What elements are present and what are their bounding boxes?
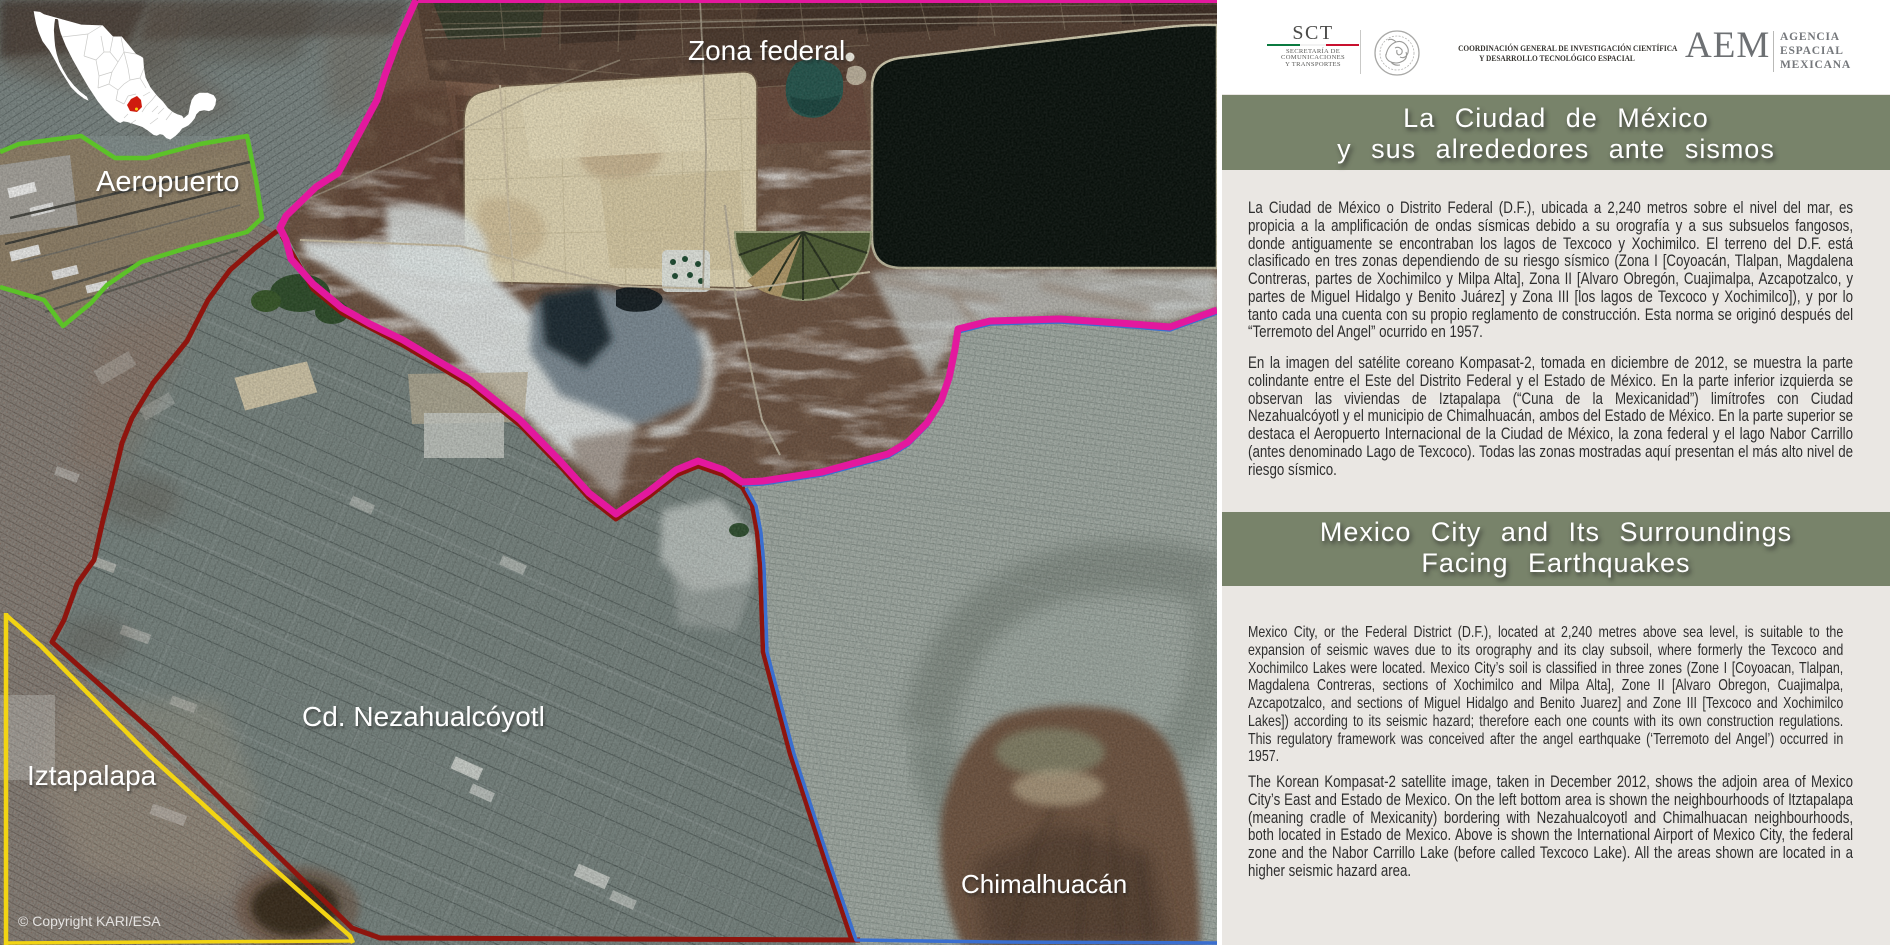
svg-text:Chimalhuacán: Chimalhuacán [961,869,1127,899]
svg-text:Cd. Nezahualcóyotl: Cd. Nezahualcóyotl [302,701,545,732]
svg-text:Aeropuerto: Aeropuerto [96,166,240,198]
svg-text:© Copyright KARI/ESA: © Copyright KARI/ESA [18,913,161,929]
svg-text:Iztapalapa: Iztapalapa [27,760,157,791]
svg-text:Zona federal: Zona federal [688,35,845,66]
